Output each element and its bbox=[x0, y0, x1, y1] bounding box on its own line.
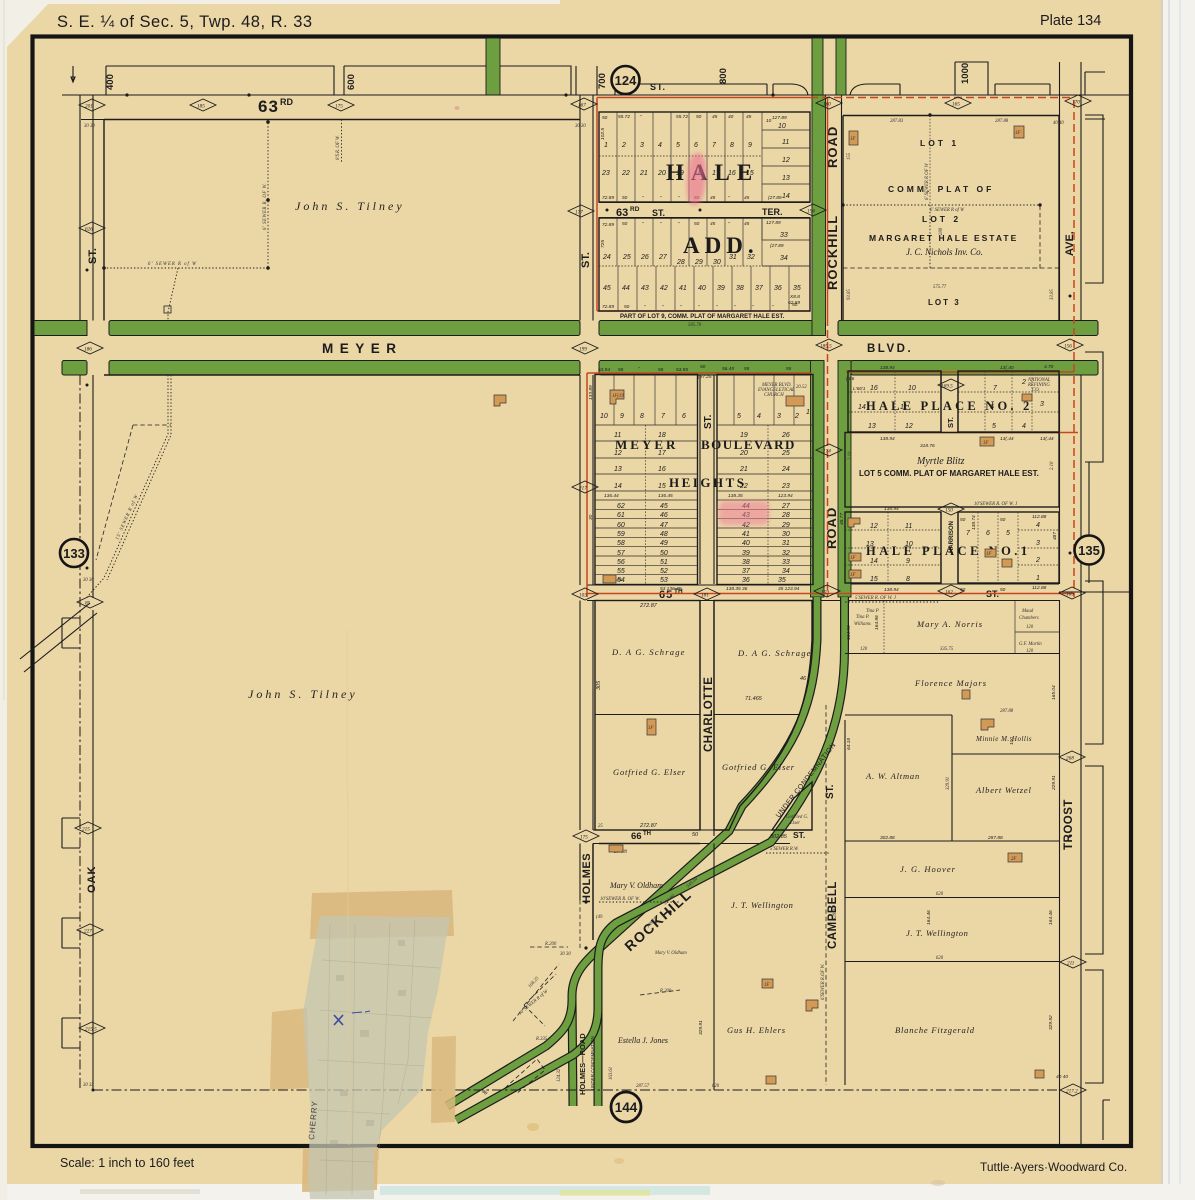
svg-text:700: 700 bbox=[597, 73, 608, 89]
svg-text:38: 38 bbox=[742, 559, 750, 566]
svg-text:48: 48 bbox=[660, 531, 668, 538]
svg-text:6: 6 bbox=[694, 142, 698, 149]
svg-text:28: 28 bbox=[781, 512, 790, 519]
svg-text:13(.44: 13(.44 bbox=[1000, 436, 1014, 442]
svg-text:15: 15 bbox=[870, 576, 878, 583]
svg-text:85: 85 bbox=[85, 601, 91, 607]
svg-text:800: 800 bbox=[718, 68, 729, 84]
svg-text:ST.: ST. bbox=[650, 82, 666, 92]
svg-text:620: 620 bbox=[712, 1084, 720, 1089]
svg-text:28: 28 bbox=[676, 259, 685, 266]
svg-text:600: 600 bbox=[346, 74, 357, 90]
svg-text:HEIGHTS: HEIGHTS bbox=[669, 475, 746, 490]
svg-text:127.89: 127.89 bbox=[772, 115, 787, 121]
svg-text:175: 175 bbox=[580, 835, 588, 841]
svg-text:11: 11 bbox=[905, 523, 912, 530]
svg-text:318.76: 318.76 bbox=[920, 443, 935, 449]
svg-text:329.91: 329.91 bbox=[698, 1020, 704, 1035]
svg-text:138.94: 138.94 bbox=[884, 587, 899, 593]
svg-text:″: ″ bbox=[752, 304, 754, 310]
svg-text:Gotfried G. Elser: Gotfried G. Elser bbox=[722, 762, 795, 772]
svg-text:135: 135 bbox=[1078, 543, 1100, 558]
svg-text:UNDER CONDEMNATION: UNDER CONDEMNATION bbox=[590, 1036, 595, 1090]
svg-text:″: ″ bbox=[734, 304, 736, 310]
svg-text:3: 3 bbox=[1036, 540, 1040, 547]
svg-text:63: 63 bbox=[258, 97, 279, 116]
svg-text:71.465: 71.465 bbox=[745, 696, 763, 702]
svg-text:(97.25: (97.25 bbox=[698, 374, 712, 380]
svg-text:169: 169 bbox=[1066, 592, 1074, 598]
svg-text:2.10: 2.10 bbox=[848, 451, 853, 460]
svg-text:272.87: 272.87 bbox=[639, 823, 658, 829]
svg-text:45: 45 bbox=[710, 221, 716, 227]
svg-text:305: 305 bbox=[596, 680, 602, 690]
svg-text:725: 725 bbox=[600, 240, 606, 248]
svg-text:9: 9 bbox=[748, 142, 752, 149]
svg-text:5′SEWER R. OF W. J: 5′SEWER R. OF W. J bbox=[855, 596, 897, 601]
svg-text:185.5: 185.5 bbox=[820, 344, 832, 350]
svg-text:RD: RD bbox=[280, 97, 293, 107]
svg-text:120: 120 bbox=[1026, 625, 1034, 630]
svg-text:ST.: ST. bbox=[946, 417, 955, 428]
svg-text:164.96: 164.96 bbox=[874, 615, 880, 630]
svg-text:33: 33 bbox=[780, 232, 788, 239]
svg-text:138.35: 138.35 bbox=[728, 493, 743, 499]
svg-text:Myrtle Blitz: Myrtle Blitz bbox=[916, 456, 965, 467]
svg-text:57: 57 bbox=[617, 550, 626, 557]
svg-text:201: 201 bbox=[85, 104, 93, 110]
svg-text:199: 199 bbox=[579, 347, 587, 353]
svg-text:144: 144 bbox=[615, 1100, 638, 1115]
svg-text:100: 100 bbox=[1009, 737, 1015, 745]
svg-text:HALE PLACE NO.1: HALE PLACE NO.1 bbox=[866, 544, 1031, 558]
svg-text:48.77: 48.77 bbox=[839, 513, 845, 525]
svg-text:159: 159 bbox=[821, 590, 829, 596]
svg-text:487: 487 bbox=[1052, 532, 1058, 540]
svg-text:10′SEWER R. OF W. J: 10′SEWER R. OF W. J bbox=[974, 502, 1018, 507]
svg-text:112.88: 112.88 bbox=[1032, 585, 1047, 591]
svg-text:TH: TH bbox=[643, 831, 651, 837]
svg-text:38: 38 bbox=[736, 285, 744, 292]
svg-text:D. A G. Schrage: D. A G. Schrage bbox=[737, 648, 812, 658]
svg-text:Maud: Maud bbox=[1021, 609, 1034, 614]
svg-text:22: 22 bbox=[621, 170, 630, 177]
svg-text:56: 56 bbox=[617, 559, 625, 566]
svg-text:″: ″ bbox=[728, 221, 730, 227]
svg-text:61: 61 bbox=[617, 512, 625, 519]
svg-text:8′S.R. OF W.: 8′S.R. OF W. bbox=[336, 135, 341, 160]
svg-text:123.94: 123.94 bbox=[778, 493, 793, 499]
svg-text:40: 40 bbox=[698, 285, 706, 292]
svg-text:55.72: 55.72 bbox=[618, 114, 630, 120]
svg-text:TER.: TER. bbox=[762, 207, 783, 217]
svg-text:268: 268 bbox=[1066, 756, 1074, 762]
svg-text:Florence Majors: Florence Majors bbox=[914, 678, 987, 688]
svg-text:45: 45 bbox=[660, 503, 668, 510]
svg-text:194: 194 bbox=[807, 208, 815, 215]
svg-text:39: 39 bbox=[717, 285, 725, 292]
svg-text:46: 46 bbox=[660, 512, 668, 519]
svg-text:1F: 1F bbox=[1015, 131, 1020, 136]
svg-text:51: 51 bbox=[660, 559, 668, 566]
svg-text:J. T. Wellington: J. T. Wellington bbox=[906, 928, 969, 938]
svg-text:44: 44 bbox=[622, 285, 630, 292]
svg-text:27: 27 bbox=[781, 503, 791, 510]
svg-text:50: 50 bbox=[624, 304, 630, 310]
svg-text:LOT 2: LOT 2 bbox=[922, 214, 961, 224]
svg-text:174: 174 bbox=[823, 448, 831, 455]
svg-text:36: 36 bbox=[774, 285, 782, 292]
svg-text:138.94: 138.94 bbox=[884, 506, 899, 512]
svg-text:Tina P.: Tina P. bbox=[856, 615, 869, 620]
svg-text:6′ SEWER R. OF W.: 6′ SEWER R. OF W. bbox=[263, 183, 268, 230]
svg-text:D. A G. Schrage: D. A G. Schrage bbox=[611, 647, 686, 657]
svg-text:41: 41 bbox=[742, 531, 750, 538]
svg-text:″: ″ bbox=[642, 221, 644, 227]
svg-text:1F: 1F bbox=[764, 983, 769, 988]
svg-text:329.91: 329.91 bbox=[946, 777, 951, 790]
svg-text:50: 50 bbox=[1000, 517, 1006, 523]
svg-text:5: 5 bbox=[1006, 530, 1010, 537]
svg-text:R.335: R.335 bbox=[535, 1037, 548, 1042]
svg-text:30 30: 30 30 bbox=[575, 124, 586, 129]
svg-text:112.88: 112.88 bbox=[1032, 514, 1047, 520]
svg-text:400: 400 bbox=[105, 74, 116, 90]
svg-text:ST.: ST. bbox=[703, 414, 714, 429]
svg-text:50: 50 bbox=[1000, 587, 1006, 593]
svg-text:4: 4 bbox=[757, 413, 761, 420]
svg-text:CHURCH: CHURCH bbox=[764, 393, 784, 398]
svg-text:2F: 2F bbox=[1011, 857, 1016, 862]
svg-text:30 32: 30 32 bbox=[83, 1083, 94, 1088]
svg-text:″: ″ bbox=[678, 221, 680, 227]
svg-text:164.96: 164.96 bbox=[846, 625, 852, 640]
svg-text:23: 23 bbox=[601, 170, 610, 177]
svg-text:″: ″ bbox=[662, 304, 664, 310]
svg-text:5: 5 bbox=[992, 423, 996, 430]
svg-text:19: 19 bbox=[740, 432, 748, 439]
svg-text:2.10: 2.10 bbox=[1050, 461, 1055, 470]
svg-text:329.92: 329.92 bbox=[1048, 1015, 1054, 1030]
svg-text:15: 15 bbox=[658, 483, 666, 490]
svg-text:217: 217 bbox=[579, 486, 587, 492]
svg-text:120: 120 bbox=[1026, 649, 1034, 654]
svg-text:34: 34 bbox=[780, 255, 788, 262]
svg-text:″: ″ bbox=[660, 221, 662, 227]
svg-text:45: 45 bbox=[746, 114, 752, 120]
svg-text:25: 25 bbox=[598, 824, 603, 829]
svg-text:1F: 1F bbox=[983, 441, 988, 446]
svg-text:6: 6 bbox=[682, 413, 686, 420]
svg-text:1: 1 bbox=[806, 409, 810, 416]
svg-text:50: 50 bbox=[696, 114, 702, 120]
svg-text:50: 50 bbox=[692, 832, 699, 838]
svg-text:124: 124 bbox=[615, 73, 637, 88]
svg-text:8: 8 bbox=[640, 413, 644, 420]
svg-text:13: 13 bbox=[868, 423, 876, 430]
svg-text:Plate 134: Plate 134 bbox=[1040, 13, 1101, 29]
svg-text:163.61: 163.61 bbox=[609, 1067, 614, 1080]
svg-text:32: 32 bbox=[747, 254, 755, 261]
svg-text:ROAD: ROAD bbox=[824, 507, 839, 549]
svg-text:1F: 1F bbox=[850, 137, 855, 142]
svg-text:335.75: 335.75 bbox=[940, 647, 954, 652]
svg-text:5: 5 bbox=[737, 413, 741, 420]
svg-text:29: 29 bbox=[781, 522, 790, 529]
svg-text:Blanche Fitzgerald: Blanche Fitzgerald bbox=[895, 1025, 975, 1035]
svg-text:30 30: 30 30 bbox=[83, 578, 94, 583]
svg-text:″: ″ bbox=[678, 195, 680, 201]
svg-text:10: 10 bbox=[778, 123, 786, 130]
svg-text:Williams: Williams bbox=[854, 622, 871, 627]
svg-text:27: 27 bbox=[658, 254, 668, 261]
svg-text:49: 49 bbox=[660, 540, 668, 547]
svg-text:18: 18 bbox=[658, 432, 666, 439]
svg-text:20: 20 bbox=[657, 170, 666, 177]
svg-text:9: 9 bbox=[906, 558, 910, 565]
svg-text:ST.: ST. bbox=[87, 248, 99, 264]
svg-text:20.52: 20.52 bbox=[796, 385, 807, 390]
svg-text:12: 12 bbox=[905, 423, 913, 430]
svg-text:12: 12 bbox=[614, 450, 622, 457]
svg-text:J. C. Nichols Inv. Co.: J. C. Nichols Inv. Co. bbox=[906, 247, 983, 257]
svg-text:X8.8: X8.8 bbox=[789, 294, 800, 300]
svg-text:45: 45 bbox=[712, 114, 718, 120]
svg-text:169.5: 169.5 bbox=[941, 384, 953, 390]
svg-text:10: 10 bbox=[766, 118, 772, 124]
svg-text:Scale: 1 inch to 160 feet: Scale: 1 inch to 160 feet bbox=[60, 1156, 195, 1170]
svg-text:66: 66 bbox=[631, 831, 642, 842]
svg-text:170: 170 bbox=[1072, 100, 1080, 106]
svg-text:272.87: 272.87 bbox=[639, 603, 658, 609]
svg-text:37: 37 bbox=[742, 568, 751, 575]
svg-text:211: 211 bbox=[1067, 961, 1075, 967]
svg-text:53.95: 53.95 bbox=[676, 367, 688, 373]
svg-text:2: 2 bbox=[1021, 379, 1026, 386]
svg-text:167: 167 bbox=[578, 103, 586, 109]
svg-text:Elser: Elser bbox=[789, 821, 800, 826]
svg-text:4: 4 bbox=[658, 142, 662, 149]
svg-text:41: 41 bbox=[679, 285, 687, 292]
svg-text:60: 60 bbox=[617, 522, 625, 529]
svg-text:53: 53 bbox=[660, 577, 668, 584]
svg-text:40: 40 bbox=[742, 540, 750, 547]
svg-text:26: 26 bbox=[781, 432, 790, 439]
svg-text:175: 175 bbox=[335, 104, 343, 110]
svg-text:CO.: CO. bbox=[1032, 388, 1040, 393]
svg-text:63: 63 bbox=[616, 207, 628, 219]
svg-text:133.89: 133.89 bbox=[588, 385, 594, 400]
svg-text:45: 45 bbox=[710, 195, 716, 201]
svg-text:93.85: 93.85 bbox=[847, 289, 852, 300]
svg-text:3: 3 bbox=[640, 142, 644, 149]
svg-text:16: 16 bbox=[658, 466, 666, 473]
svg-text:55: 55 bbox=[617, 568, 625, 575]
svg-text:5′SEWER R.W.: 5′SEWER R.W. bbox=[770, 847, 799, 852]
svg-text:138.94: 138.94 bbox=[880, 436, 895, 442]
svg-text:24: 24 bbox=[602, 254, 611, 261]
svg-text:23: 23 bbox=[781, 483, 790, 490]
svg-text:(27.89: (27.89 bbox=[768, 195, 782, 201]
svg-text:215: 215 bbox=[82, 827, 90, 833]
svg-text:575.77: 575.77 bbox=[933, 285, 947, 290]
svg-text:12: 12 bbox=[782, 157, 790, 164]
svg-text:ST.: ST. bbox=[825, 784, 836, 799]
svg-text:138.94: 138.94 bbox=[880, 365, 895, 371]
svg-text:1F: 1F bbox=[986, 552, 991, 557]
svg-text:Albert Wetzel: Albert Wetzel bbox=[975, 785, 1032, 795]
svg-text:25: 25 bbox=[622, 254, 631, 261]
svg-text:RD: RD bbox=[630, 206, 640, 213]
svg-text:45: 45 bbox=[744, 195, 750, 201]
svg-text:8: 8 bbox=[906, 576, 910, 583]
svg-text:S. E. ¼ of Sec. 5, Twp. 48, R.: S. E. ¼ of Sec. 5, Twp. 48, R. 33 bbox=[57, 13, 313, 31]
svg-text:30: 30 bbox=[588, 514, 594, 520]
svg-text:1F: 1F bbox=[850, 573, 855, 578]
svg-text:ST.: ST. bbox=[793, 830, 805, 840]
svg-text:72.89: 72.89 bbox=[602, 222, 614, 228]
svg-text:30: 30 bbox=[782, 531, 790, 538]
svg-text:10′SEWER R. OF W.: 10′SEWER R. OF W. bbox=[600, 897, 640, 902]
svg-text:PART OF LOT 9, COMM. PLAT OF M: PART OF LOT 9, COMM. PLAT OF MARGARET HA… bbox=[620, 314, 784, 320]
svg-text:John S. Tilney: John S. Tilney bbox=[295, 199, 405, 213]
svg-text:50: 50 bbox=[622, 221, 628, 227]
svg-text:1: 1 bbox=[604, 142, 608, 149]
svg-text:8: 8 bbox=[730, 142, 734, 149]
svg-text:120: 120 bbox=[860, 647, 868, 652]
svg-text:164.46: 164.46 bbox=[926, 910, 932, 925]
svg-text:TROOST: TROOST bbox=[1063, 799, 1075, 850]
svg-text:62.89: 62.89 bbox=[788, 300, 800, 306]
svg-text:138.35 36: 138.35 36 bbox=[726, 586, 748, 592]
svg-text:165.04: 165.04 bbox=[1051, 685, 1057, 700]
svg-text:Gotfried G. Elser: Gotfried G. Elser bbox=[613, 767, 686, 777]
svg-text:22: 22 bbox=[739, 483, 748, 490]
svg-text:59: 59 bbox=[617, 531, 625, 538]
svg-text:MEYER: MEYER bbox=[615, 437, 678, 452]
svg-text:J. T. Wellington: J. T. Wellington bbox=[731, 900, 794, 910]
svg-text:35: 35 bbox=[793, 285, 801, 292]
svg-text:13: 13 bbox=[782, 175, 790, 182]
svg-text:21: 21 bbox=[639, 170, 648, 177]
svg-text:43: 43 bbox=[641, 285, 649, 292]
svg-text:33: 33 bbox=[782, 559, 790, 566]
svg-text:(.66: (.66 bbox=[846, 376, 855, 382]
svg-text:72.89: 72.89 bbox=[602, 195, 614, 201]
svg-text:31: 31 bbox=[729, 254, 737, 261]
svg-text:″: ″ bbox=[638, 366, 640, 372]
svg-text:″: ″ bbox=[640, 114, 642, 120]
svg-text:302.85: 302.85 bbox=[770, 834, 788, 840]
svg-text:HOLMES—ROAD: HOLMES—ROAD bbox=[578, 1033, 587, 1095]
svg-text:25: 25 bbox=[781, 450, 790, 457]
svg-text:56.45: 56.45 bbox=[722, 366, 734, 372]
svg-text:9: 9 bbox=[620, 413, 624, 420]
svg-text:MEYER: MEYER bbox=[322, 341, 403, 356]
svg-text:13(.44: 13(.44 bbox=[1040, 436, 1054, 442]
svg-text:LOT 3: LOT 3 bbox=[928, 298, 961, 307]
svg-text:50: 50 bbox=[660, 550, 668, 557]
svg-text:CHARLOTTE: CHARLOTTE bbox=[703, 677, 715, 752]
svg-text:47: 47 bbox=[660, 522, 669, 529]
svg-text:127.89: 127.89 bbox=[766, 220, 781, 226]
svg-text:162: 162 bbox=[945, 590, 953, 596]
svg-text:Tuttle·Ayers·Woodward Co.: Tuttle·Ayers·Woodward Co. bbox=[980, 1160, 1127, 1174]
svg-text:6′SEWER R.OF W.: 6′SEWER R.OF W. bbox=[821, 963, 826, 1000]
svg-text:186: 186 bbox=[84, 347, 92, 353]
svg-text:HOLMES: HOLMES bbox=[581, 853, 593, 903]
svg-text:40 40: 40 40 bbox=[1056, 1074, 1068, 1080]
svg-text:31: 31 bbox=[782, 540, 790, 547]
svg-text:1000: 1000 bbox=[960, 63, 971, 84]
svg-text:″: ″ bbox=[644, 304, 646, 310]
svg-text:HALE PLACE NO. 2: HALE PLACE NO. 2 bbox=[866, 399, 1033, 413]
svg-text:102.5: 102.5 bbox=[600, 128, 606, 140]
svg-text:11: 11 bbox=[782, 139, 789, 146]
svg-text:103: 103 bbox=[579, 593, 587, 599]
svg-text:1F: 1F bbox=[648, 726, 653, 731]
svg-text:Chambers: Chambers bbox=[1019, 616, 1039, 621]
svg-text:12: 12 bbox=[870, 523, 878, 530]
svg-text:53 136.45: 53 136.45 bbox=[660, 586, 682, 592]
svg-text:(49: (49 bbox=[596, 915, 603, 920]
svg-text:64.18: 64.18 bbox=[846, 738, 852, 750]
svg-text:37: 37 bbox=[755, 285, 764, 292]
svg-text:Minnie M. Hollis: Minnie M. Hollis bbox=[975, 735, 1032, 743]
svg-text:ST.: ST. bbox=[580, 252, 592, 268]
svg-text:1: 1 bbox=[1036, 575, 1040, 582]
svg-text:4: 4 bbox=[1022, 423, 1026, 430]
svg-text:″: ″ bbox=[716, 304, 718, 310]
svg-text:164.46: 164.46 bbox=[1048, 910, 1054, 925]
svg-text:72.89: 72.89 bbox=[602, 304, 614, 310]
svg-text:36: 36 bbox=[742, 577, 750, 584]
svg-text:(27.89: (27.89 bbox=[770, 243, 784, 249]
svg-text:6′ SEWER R of W: 6′ SEWER R of W bbox=[148, 262, 197, 267]
svg-text:39: 39 bbox=[742, 550, 750, 557]
svg-text:46: 46 bbox=[800, 676, 807, 682]
svg-text:6′ SEWER R of W: 6′ SEWER R of W bbox=[930, 208, 965, 213]
svg-text:R.200: R.200 bbox=[544, 942, 557, 947]
svg-text:LOT 5 COMM. PLAT OF MARGARET: LOT 5 COMM. PLAT OF MARGARET HALE EST. bbox=[859, 469, 1039, 478]
svg-text:287.88: 287.88 bbox=[987, 835, 1003, 841]
svg-text:165: 165 bbox=[952, 102, 960, 108]
svg-text:29: 29 bbox=[694, 259, 703, 266]
svg-text:181: 181 bbox=[701, 593, 709, 599]
svg-text:COMM. PLAT OF: COMM. PLAT OF bbox=[888, 184, 994, 194]
svg-text:32: 32 bbox=[782, 550, 790, 557]
svg-text:30 30: 30 30 bbox=[84, 124, 95, 129]
svg-text:John S. Tilney: John S. Tilney bbox=[248, 687, 358, 701]
svg-text:620: 620 bbox=[936, 956, 944, 961]
svg-text:136.45: 136.45 bbox=[658, 493, 673, 499]
svg-text:13: 13 bbox=[614, 466, 622, 473]
svg-text:″: ″ bbox=[698, 304, 700, 310]
svg-text:1F: 1F bbox=[850, 556, 855, 561]
svg-text:45: 45 bbox=[603, 285, 611, 292]
svg-text:55: 55 bbox=[744, 366, 750, 372]
svg-text:150: 150 bbox=[945, 508, 953, 514]
svg-text:62: 62 bbox=[617, 503, 625, 510]
svg-text:34: 34 bbox=[782, 568, 790, 575]
svg-text:155: 155 bbox=[847, 152, 852, 160]
svg-text:14: 14 bbox=[858, 404, 866, 411]
svg-text:55: 55 bbox=[786, 366, 792, 372]
svg-text:280: 280 bbox=[939, 227, 944, 235]
svg-text:Estella J. Jones: Estella J. Jones bbox=[617, 1036, 668, 1045]
svg-text:287.83: 287.83 bbox=[890, 119, 904, 124]
svg-text:24: 24 bbox=[781, 466, 790, 473]
